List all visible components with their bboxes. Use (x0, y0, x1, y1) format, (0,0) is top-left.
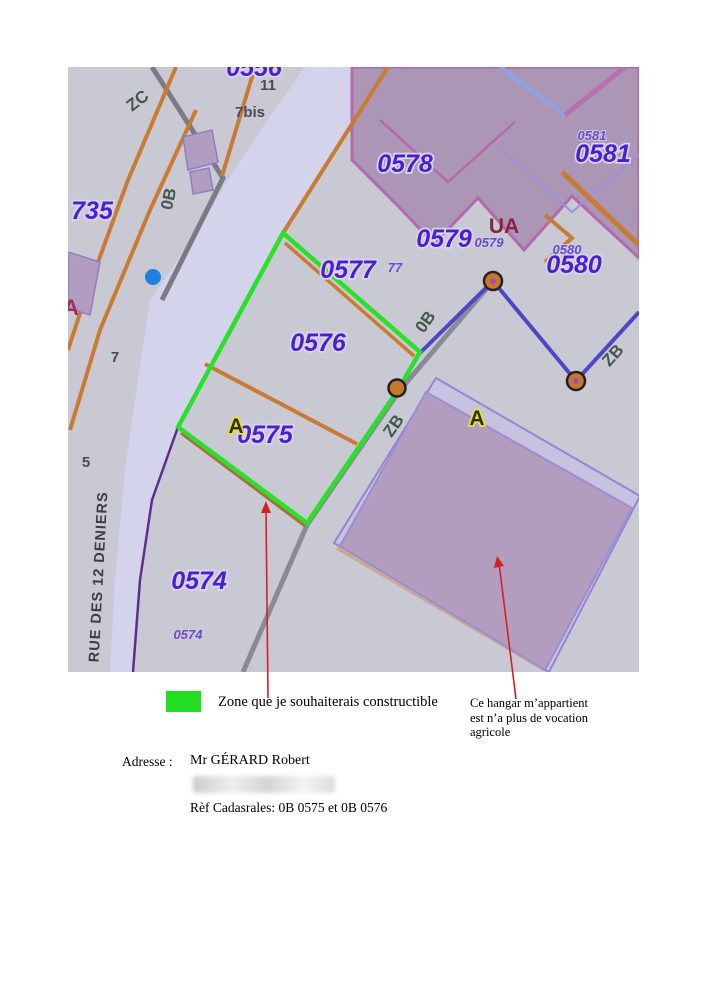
address-label: Adresse : (122, 754, 173, 770)
house-number: 7bis (235, 104, 265, 121)
parcel-number: 0576 (290, 329, 347, 357)
parcel-number: 0577 (320, 256, 377, 284)
parcel-number-small: 0581 (578, 128, 607, 143)
parcel-number: 735 (71, 197, 114, 225)
hangar-note-line: est n’a plus de vocation (470, 711, 630, 726)
parcel-number: 0578 (377, 150, 433, 178)
parcel-number-small: 77 (388, 260, 403, 275)
legend-green-swatch (166, 691, 201, 712)
hangar-note-line: agricole (470, 725, 630, 740)
ua-zone-label: UA (489, 215, 519, 238)
small-building (190, 168, 213, 194)
house-number: 11 (260, 77, 276, 94)
small-building (183, 130, 218, 170)
building-marker-a: A (228, 415, 243, 438)
parcel-number-small: 0580 (553, 242, 583, 257)
parcel-number: 0575 (237, 421, 294, 449)
survey-point (389, 380, 406, 397)
address-name: Mr GÉRARD Robert (190, 753, 310, 769)
parcel-number: 0579 (416, 225, 472, 253)
parcel-number: 0581 (575, 140, 631, 168)
map-canvas: 0556 735 0574 0575 0576 0577 0578 0579 0… (63, 54, 640, 672)
scanned-letter-page: 0556 735 0574 0575 0576 0577 0578 0579 0… (0, 0, 706, 1000)
legend-zone-label: Zone que je souhaiterais constructible (218, 694, 438, 711)
red-marker-a: A (63, 295, 79, 320)
survey-point-center (490, 278, 496, 284)
building-marker-a: A (469, 407, 484, 430)
house-number: 7 (111, 349, 119, 366)
cadastral-reference: Rèf Cadasrales: 0B 0575 et 0B 0576 (190, 800, 387, 816)
parcel-number: 0574 (171, 567, 227, 595)
cadastral-map: 0556 735 0574 0575 0576 0577 0578 0579 0… (0, 0, 706, 1000)
hangar-note-line: Ce hangar m’appartient (470, 696, 630, 711)
blue-dot-marker (145, 269, 161, 285)
survey-point-center (573, 378, 579, 384)
house-number: 5 (82, 454, 90, 471)
hangar-note: Ce hangar m’appartient est n’a plus de v… (470, 696, 630, 740)
redacted-address-line (193, 776, 335, 793)
parcel-number-small: 0574 (174, 627, 204, 642)
